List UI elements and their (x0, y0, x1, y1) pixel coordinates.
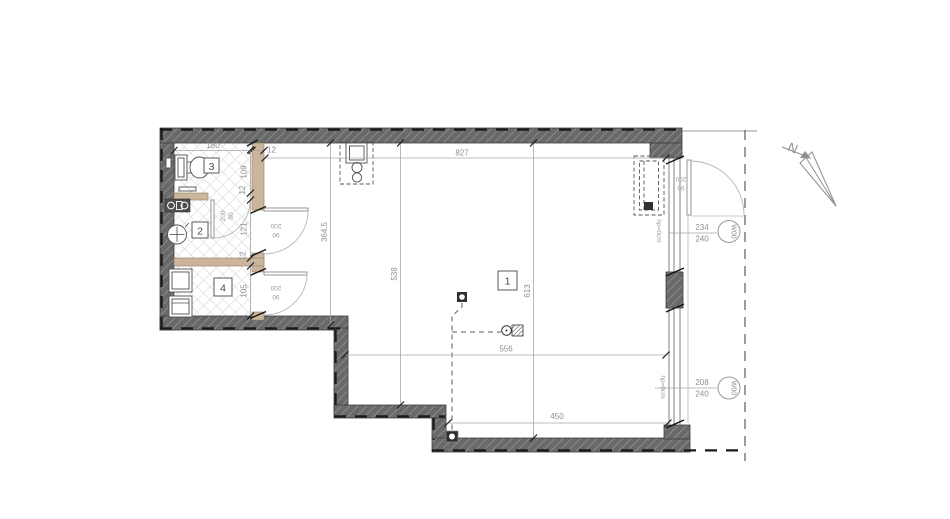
window-top-tag: W00 (730, 224, 737, 239)
window-wall (666, 156, 688, 428)
washbasin-counter (165, 199, 190, 212)
door-balcony-leaf (687, 160, 691, 215)
door-bath-size-width: 80 (228, 212, 235, 220)
window-tag-bottom: 208 240 W00 hp=0cm (655, 375, 740, 399)
door-room2-label: 90 200 (270, 222, 281, 238)
toilet-paper-holder (166, 158, 171, 168)
door-room2-size-height: 200 (270, 222, 281, 229)
door-room4-label: 90 200 (270, 284, 281, 300)
dim-556: 556 (342, 345, 670, 359)
dim-12-b: 12 (239, 251, 248, 260)
room-1-number: 1 (505, 276, 511, 288)
door-balcony-label: 90 200 (675, 175, 686, 191)
window-bottom-sill: hp=0cm (659, 375, 666, 398)
door-balcony: 90 200 (675, 160, 744, 216)
room-3-number: 3 (209, 161, 215, 173)
window-bottom-width: 208 (695, 378, 709, 387)
north-letter: N (785, 139, 800, 157)
door-bath-leaf (211, 200, 214, 238)
kitchen-unit (340, 142, 373, 184)
room-label-3: 3 (204, 158, 219, 173)
dim-109: 109 (240, 165, 249, 179)
floor-socket-2 (502, 325, 523, 336)
window-top-sill: hp=0cm (655, 219, 662, 242)
dim-main-width: 827 (262, 149, 670, 162)
room-4-number: 4 (220, 283, 226, 295)
room-label-4: 4 (214, 278, 232, 296)
door-room4-leaf (264, 272, 307, 275)
dryer (169, 296, 192, 317)
dim-538: 538 (390, 267, 399, 281)
dim-105: 105 (240, 284, 249, 298)
dim-hall-height: 364.5 (320, 140, 334, 329)
room-label-1: 1 (498, 271, 517, 290)
dim-556-text: 556 (499, 345, 513, 354)
door-balcony-size-width: 90 (677, 184, 685, 191)
dim-364-5: 364.5 (320, 221, 329, 242)
door-room2: 90 200 (264, 208, 308, 254)
window-top-width: 234 (695, 223, 709, 232)
floor-plan-page: 90 200 90 200 200 80 90 200 (0, 0, 950, 519)
hob-burner-1 (352, 163, 362, 173)
dim-613: 613 (523, 284, 532, 298)
window-pier (666, 272, 683, 308)
room-2-number: 2 (197, 226, 203, 238)
door-room4-size-height: 200 (270, 284, 281, 291)
cable-route (452, 303, 501, 437)
window-bottom-tag: W00 (730, 381, 737, 396)
north-arrow: N (782, 139, 836, 206)
dim-180: 180 (206, 141, 220, 150)
balcony-outline (682, 130, 757, 461)
dim-12-a: 12 (238, 185, 247, 194)
dim-121: 121 (240, 222, 249, 236)
room-label-2: 2 (192, 222, 208, 238)
floor-plan-svg: 90 200 90 200 200 80 90 200 (0, 0, 950, 519)
washer (169, 269, 192, 292)
door-bath-size-height: 200 (220, 210, 227, 221)
dim-main-left-height: 538 (390, 140, 404, 409)
door-room4: 90 200 (264, 272, 307, 315)
window-tag-top: 234 240 W00 hp=0cm (655, 219, 740, 243)
dim-450-text: 450 (550, 412, 564, 421)
wall-socket (446, 431, 458, 442)
door-balcony-size-height: 200 (675, 175, 686, 182)
door-room2-leaf (264, 208, 308, 211)
window-bottom-height: 240 (695, 390, 709, 399)
toilet-tank (175, 155, 187, 180)
dim-12-top: 12 (267, 146, 276, 155)
dim-main-right-height: 613 (523, 140, 537, 442)
floor-socket-1 (457, 292, 467, 302)
wardrobe (634, 156, 664, 215)
hob-burner-2 (352, 173, 361, 182)
dim-827: 827 (455, 149, 469, 158)
door-room4-size-width: 90 (272, 293, 280, 300)
door-room2-size-width: 90 (272, 231, 280, 238)
dim-450: 450 (445, 412, 672, 427)
window-top-height: 240 (695, 235, 709, 244)
